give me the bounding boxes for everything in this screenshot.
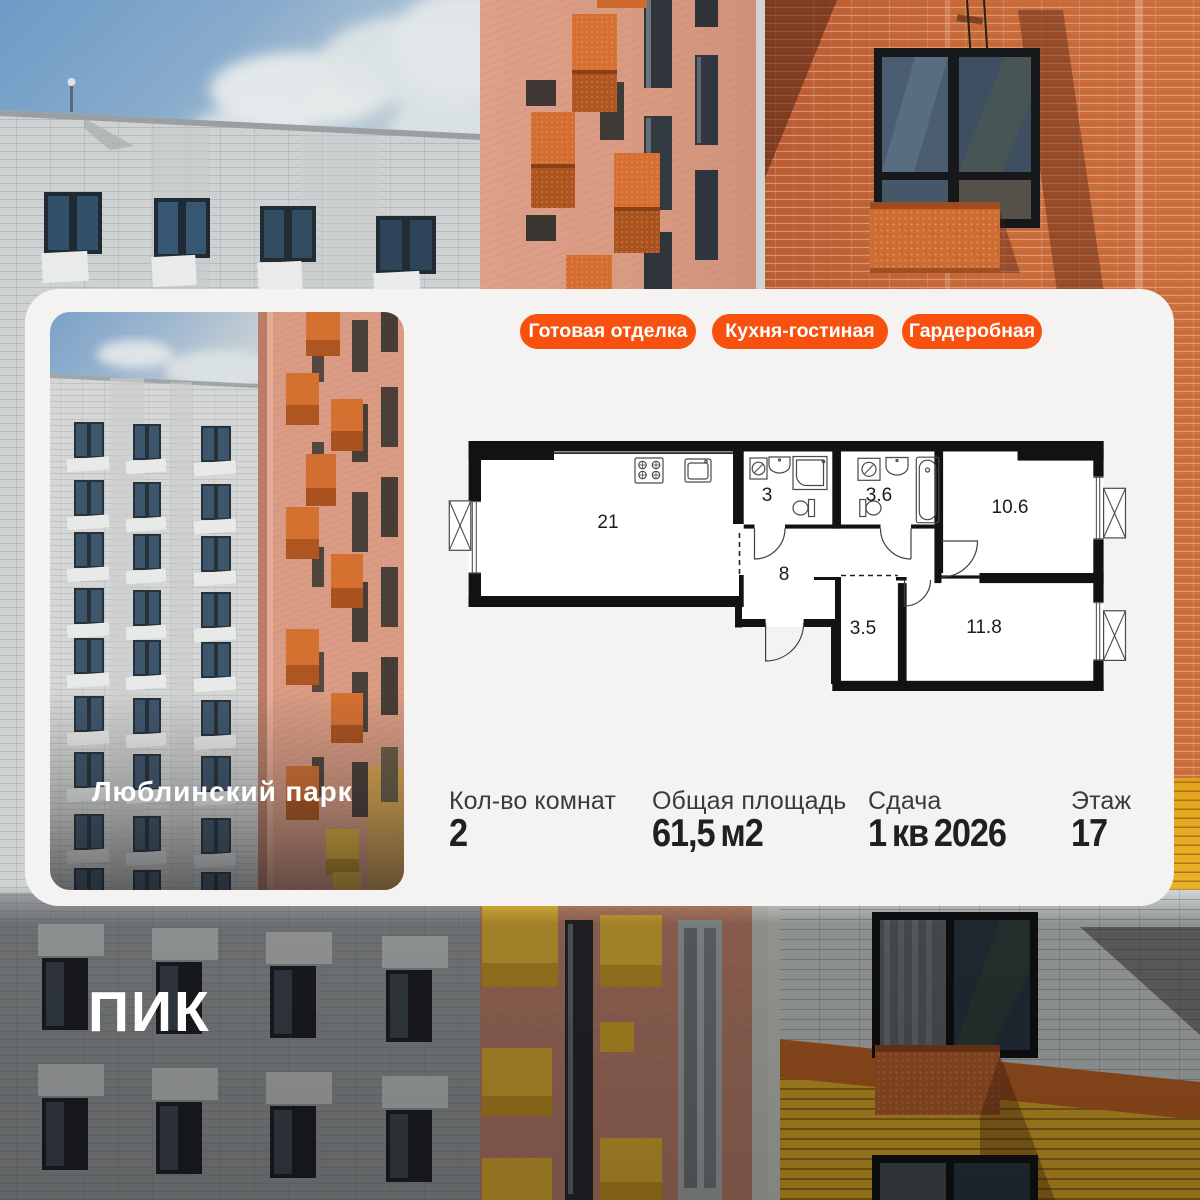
svg-text:11.8: 11.8 — [966, 617, 1002, 638]
svg-text:3.6: 3.6 — [866, 485, 892, 506]
svg-text:10.6: 10.6 — [992, 497, 1029, 518]
svg-text:8: 8 — [779, 564, 790, 585]
svg-text:3: 3 — [762, 485, 773, 506]
svg-text:21: 21 — [597, 512, 618, 533]
svg-text:3.5: 3.5 — [850, 618, 876, 639]
